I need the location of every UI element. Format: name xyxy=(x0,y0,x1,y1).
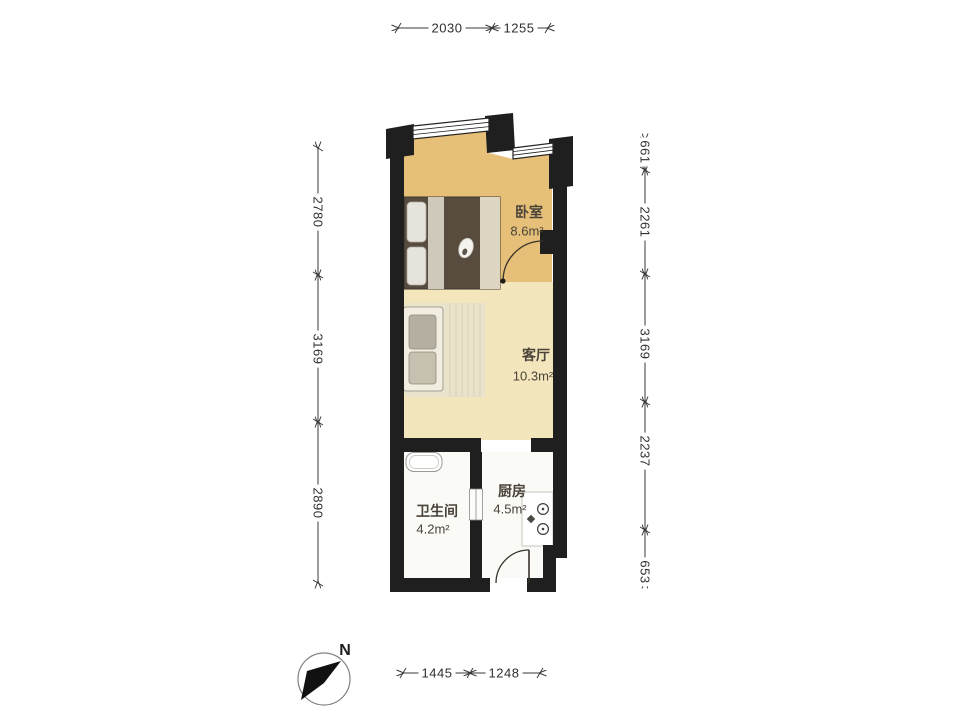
dim-right-4: 2237 xyxy=(638,433,653,470)
stove xyxy=(522,492,553,546)
floor-plan-page: 卧室 8.6m² 客厅 10.3m² 卫生间 4.2m² 厨房 4.5m² 20… xyxy=(0,0,960,720)
bathroom-label: 卫生间 xyxy=(416,504,458,518)
dim-left-2: 3169 xyxy=(311,331,326,368)
dim-top-1: 2030 xyxy=(429,21,466,36)
bathroom-sliding-door xyxy=(470,489,483,520)
dim-bottom-1: 1445 xyxy=(419,666,456,681)
dim-right-3: 3169 xyxy=(638,326,653,363)
floor-plan-drawing xyxy=(0,0,960,720)
living-room-label: 客厅 xyxy=(522,348,550,362)
kitchen-label: 厨房 xyxy=(498,484,526,498)
bed xyxy=(404,197,500,289)
bathtub xyxy=(406,453,442,472)
compass-north-label: N xyxy=(339,643,351,659)
dim-left-3: 2890 xyxy=(311,485,326,522)
bathroom-area: 4.2m² xyxy=(416,523,449,536)
dim-left-1: 2780 xyxy=(311,194,326,231)
dim-top-2: 1255 xyxy=(501,21,538,36)
bedroom-label: 卧室 xyxy=(515,205,543,219)
sofa-and-rug xyxy=(403,303,485,397)
dim-bottom-2: 1248 xyxy=(486,666,523,681)
dim-right-1: 661 xyxy=(638,137,653,166)
living-room-area: 10.3m² xyxy=(513,370,553,383)
compass xyxy=(298,653,350,705)
kitchen-area: 4.5m² xyxy=(493,503,526,516)
dim-right-5: 653 xyxy=(638,557,653,586)
dim-right-2: 2261 xyxy=(638,204,653,241)
bedroom-area: 8.6m² xyxy=(510,225,543,238)
